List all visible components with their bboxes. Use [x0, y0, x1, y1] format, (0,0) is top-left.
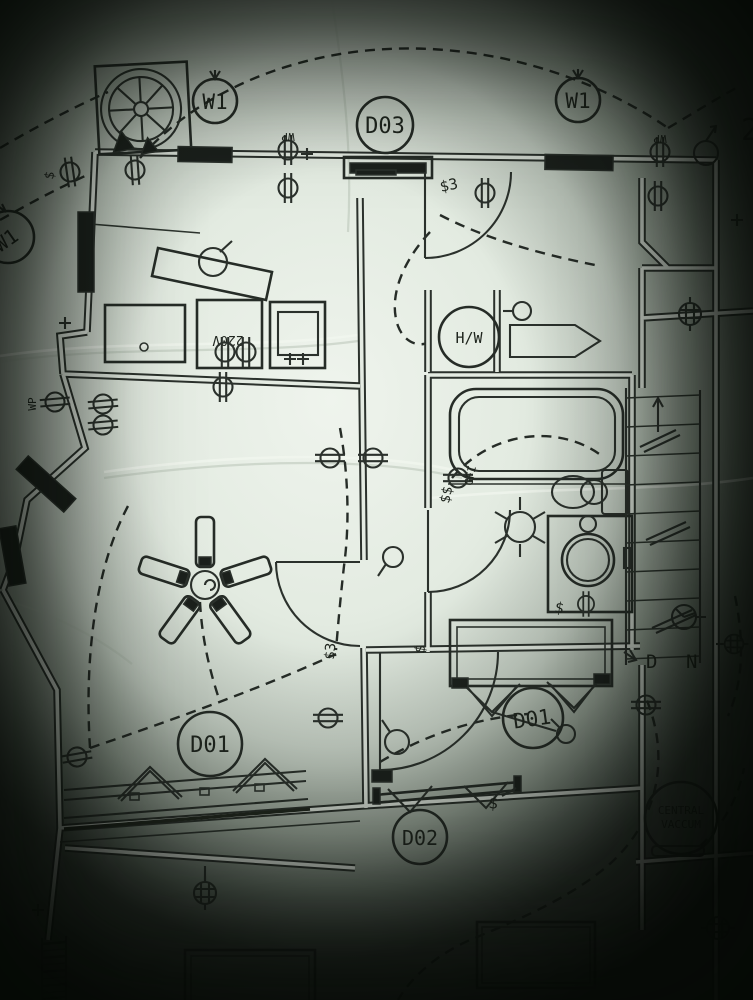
hot-water-tank: H/W: [439, 307, 499, 367]
door-tag-d03: D03: [357, 97, 413, 153]
bath-ceiling-light: [495, 497, 545, 557]
hatched-square: [95, 62, 192, 157]
stairs: D N: [624, 388, 706, 673]
vanity-sink: $: [548, 516, 632, 618]
wp-label: WP: [653, 132, 667, 145]
floorplan-drawing: 220V H/W $ GFI $$ D N: [0, 0, 753, 1000]
d02-door-swing: [372, 652, 498, 782]
switch-pair-symbol: $$: [437, 485, 456, 505]
central-vacuum: CENTRAL VACCUM: [645, 782, 717, 856]
windows: [0, 147, 613, 586]
bottom-rooms: [32, 866, 595, 1000]
three-way-switch: $3: [438, 175, 459, 196]
stair-down-label-n: N: [686, 651, 697, 673]
laundry-appliances: 220V: [105, 300, 325, 368]
edge-partial-text: 2: [741, 113, 753, 148]
hatched-arrow: [503, 302, 600, 357]
ceiling-fan: [138, 517, 273, 645]
svg-text:VACCUM: VACCUM: [661, 818, 701, 831]
kitchen-counter: [152, 241, 272, 300]
deck-stairs: [42, 936, 66, 1000]
svg-text:H/W: H/W: [455, 329, 483, 347]
greatroom-door-swing: [276, 562, 360, 646]
three-way-switch: $3: [322, 642, 339, 660]
floorplan-photo: 220V H/W $ GFI $$ D N: [0, 0, 753, 1000]
window-tag: W1: [556, 69, 600, 122]
svg-text:W1: W1: [565, 89, 590, 113]
window-tag: W1: [193, 70, 237, 123]
svg-text:D01: D01: [512, 705, 553, 734]
wp-label: WP: [26, 397, 39, 411]
svg-text:D02: D02: [402, 826, 438, 850]
svg-text:CENTRAL: CENTRAL: [658, 804, 705, 817]
switch-symbol: $: [42, 170, 58, 180]
door-tag-d01: D01: [492, 688, 563, 748]
entry-door-swing: [425, 172, 511, 258]
switch-symbol: $: [488, 793, 499, 813]
toilet: [552, 470, 628, 514]
svg-text:D01: D01: [190, 733, 230, 758]
stair-down-label-d: D: [646, 651, 657, 673]
svg-text:D03: D03: [365, 114, 405, 139]
wp-label: WP: [281, 130, 295, 143]
door-tag-d01: D01: [178, 712, 242, 776]
window-seat: [60, 759, 360, 842]
door-tag-d02: D02: [393, 810, 447, 864]
switch-symbol: $: [553, 598, 565, 617]
window-tag: W1: [0, 204, 34, 263]
svg-text:W1: W1: [202, 90, 227, 114]
window-bench: [450, 620, 612, 716]
svg-text:W1: W1: [0, 224, 23, 257]
stair-up-arrow: [653, 398, 663, 432]
bathroom-door-swing: [428, 510, 510, 592]
